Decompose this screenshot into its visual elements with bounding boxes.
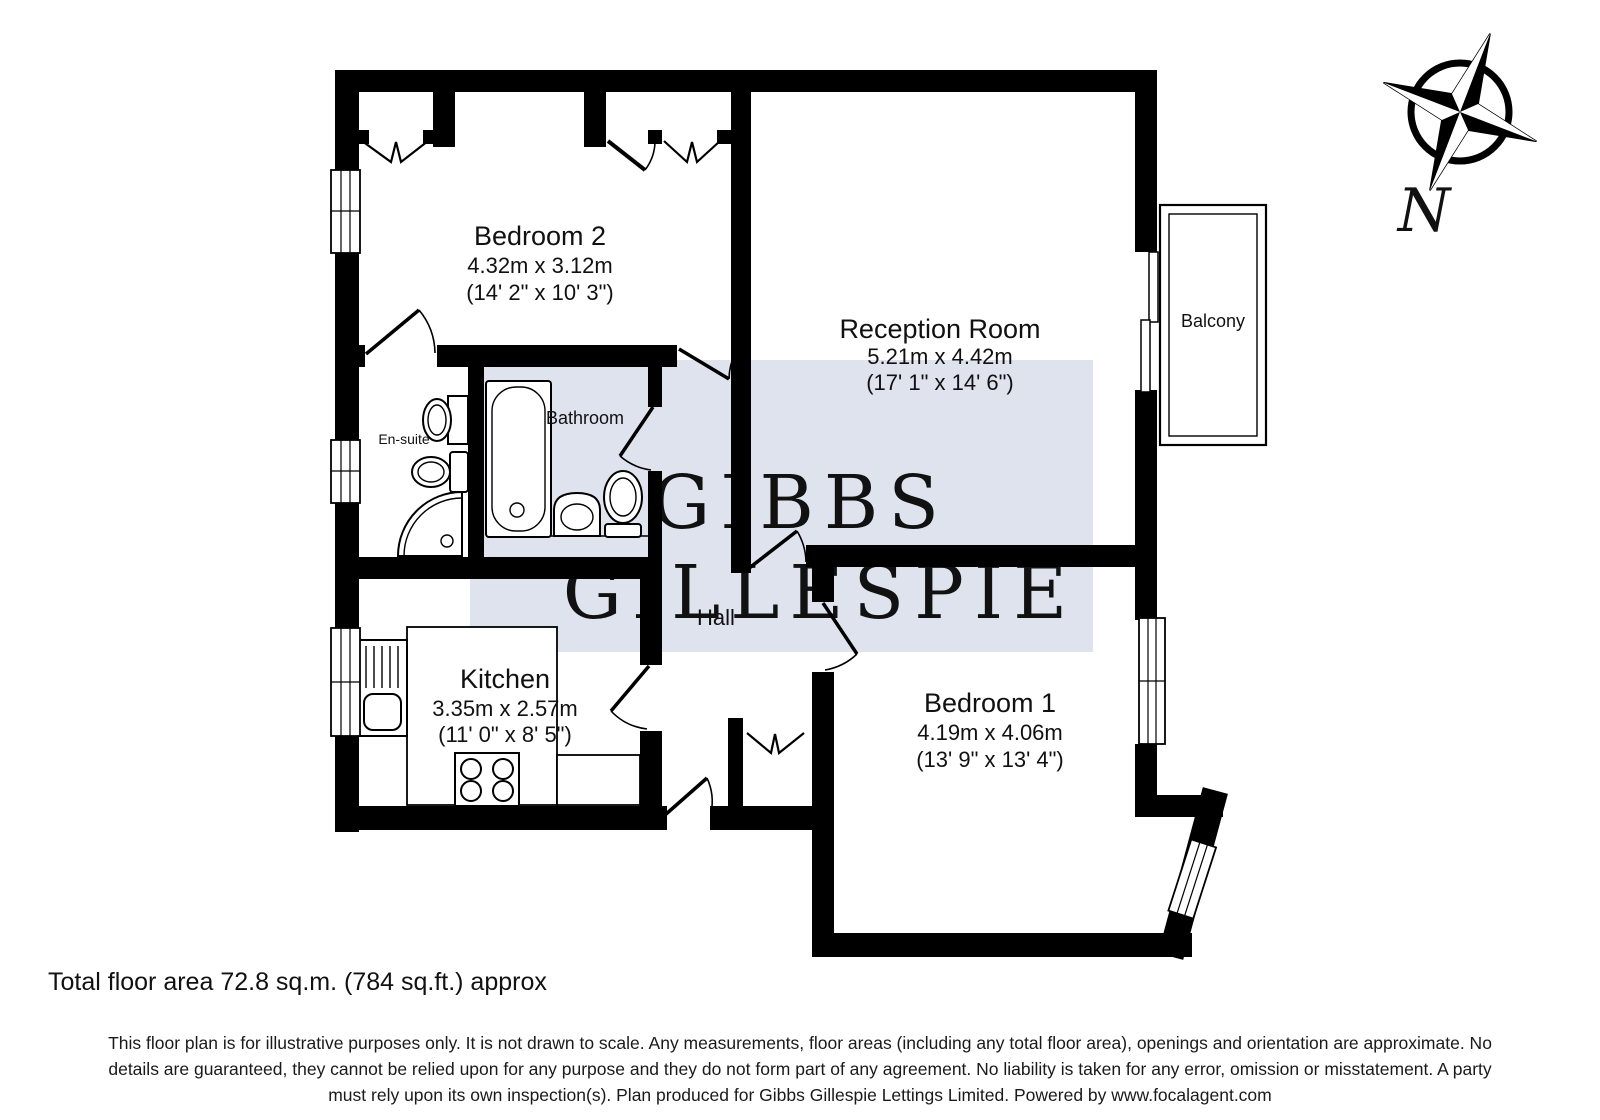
reception-name: Reception Room [839, 314, 1040, 344]
reception-imperial: (17' 1" x 14' 6") [866, 370, 1014, 395]
reception-metric: 5.21m x 4.42m [867, 344, 1013, 369]
total-floor-area: Total floor area 72.8 sq.m. (784 sq.ft.)… [48, 968, 547, 996]
kitchen-hob [455, 753, 519, 806]
watermark-line1: GIBBS [651, 460, 949, 546]
room-label-hall: Hall [697, 605, 735, 630]
floor-plan: GIBBS GILLESPIE [0, 0, 1600, 1120]
bedroom1-name: Bedroom 1 [924, 688, 1056, 718]
ensuite-window [331, 440, 360, 503]
bedroom2-metric: 4.32m x 3.12m [467, 253, 613, 278]
kitchen-counter-bottom [557, 755, 640, 805]
bathroom-sink [554, 493, 600, 536]
bedroom2-imperial: (14' 2" x 10' 3") [466, 280, 614, 305]
kitchen-metric: 3.35m x 2.57m [432, 696, 578, 721]
disclaimer-line-2: details are guaranteed, they cannot be r… [108, 1059, 1492, 1079]
kitchen-imperial: (11' 0" x 8' 5") [438, 722, 572, 747]
room-label-bedroom2: Bedroom 2 4.32m x 3.12m (14' 2" x 10' 3"… [466, 221, 614, 305]
room-label-bedroom1: Bedroom 1 4.19m x 4.06m (13' 9" x 13' 4"… [916, 688, 1064, 772]
bedroom1-imperial: (13' 9" x 13' 4") [916, 747, 1064, 772]
bathroom-toilet [604, 471, 642, 537]
room-label-reception: Reception Room 5.21m x 4.42m (17' 1" x 1… [839, 314, 1040, 395]
room-label-bathroom: Bathroom [546, 408, 624, 428]
room-label-balcony: Balcony [1181, 311, 1245, 331]
bedroom1-window [1139, 618, 1165, 744]
bedroom2-name: Bedroom 2 [474, 221, 606, 251]
bedroom2-window [331, 170, 360, 253]
disclaimer-line-1: This floor plan is for illustrative purp… [108, 1033, 1492, 1053]
floor-plan-page: GIBBS GILLESPIE [0, 0, 1600, 1120]
kitchen-window [331, 628, 360, 736]
north-label: N [1396, 176, 1453, 246]
kitchen-sink [358, 640, 407, 736]
ensuite-sink [423, 396, 468, 444]
room-label-ensuite: En-suite [378, 431, 430, 447]
bedroom1-metric: 4.19m x 4.06m [917, 720, 1063, 745]
kitchen-name: Kitchen [460, 664, 550, 694]
bathtub [486, 381, 551, 537]
disclaimer-line-3: must rely upon its own inspection(s). Pl… [328, 1085, 1272, 1105]
